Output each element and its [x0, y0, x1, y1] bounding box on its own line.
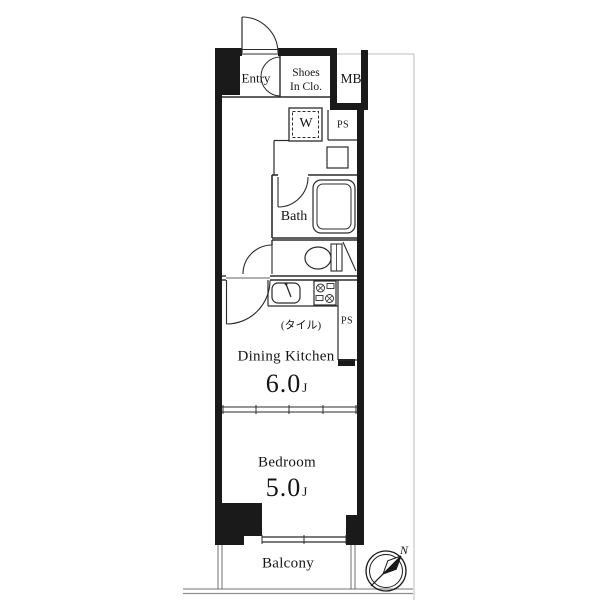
entry-label: Entry [242, 72, 271, 87]
washer-label: W [299, 116, 312, 132]
wall-bottom-left-block [215, 503, 262, 536]
wall-mb-right [361, 50, 368, 110]
floor-plan: Entry Shoes In Clo. MB W PS Bath PS (タイル… [0, 0, 600, 600]
tile-note-label: (タイル) [281, 320, 321, 333]
toilet-bowl [305, 247, 331, 269]
wall-mb-left [330, 48, 337, 110]
bedroom-window [262, 535, 346, 544]
washer-area [274, 108, 357, 175]
pipe-space-top-label: PS [337, 119, 349, 131]
bedroom-label: Bedroom [258, 454, 316, 471]
faucet [286, 284, 291, 297]
wall-bottom-left-foot [215, 533, 244, 545]
dk-door-swing [227, 281, 271, 325]
dk-size-unit: J [302, 381, 308, 396]
shoes-closet-label: Shoes In Clo. [290, 66, 322, 94]
toilet-room [243, 240, 357, 274]
wall-east [357, 103, 364, 545]
water-heater-box [327, 147, 348, 168]
dining-kitchen-size: 6.0J [266, 369, 309, 399]
bedroom-size: 5.0J [266, 473, 309, 503]
toilet-door-swing [243, 245, 272, 274]
compass-north-label: N [400, 544, 408, 558]
bathtub-inner [317, 184, 351, 229]
wall-bottom-right-block [346, 515, 364, 545]
room-divider [222, 405, 357, 414]
entry-door [242, 17, 278, 54]
bedroom-size-number: 5.0 [266, 473, 302, 503]
dk-size-number: 6.0 [266, 369, 302, 399]
kitchen-sink [272, 283, 300, 303]
wall-west [215, 48, 222, 545]
dining-kitchen-label: Dining Kitchen [237, 348, 334, 365]
bathtub-outer [313, 180, 355, 233]
compass-needle-black-half [383, 556, 401, 574]
bedroom-size-unit: J [302, 485, 308, 500]
entry-door-swing [242, 17, 278, 53]
shoes-closet-label-line1: Shoes [290, 66, 322, 80]
meter-box-label: MB [340, 71, 361, 87]
shoes-closet-label-line2: In Clo. [290, 80, 322, 94]
balcony-label: Balcony [262, 555, 314, 572]
pipe-space-bottom-label: PS [341, 315, 353, 327]
bath-room [272, 175, 357, 238]
bath-label: Bath [281, 209, 307, 225]
bath-door-swing [278, 177, 308, 207]
wall-top-right-segment [278, 48, 330, 56]
toilet-corner-line [343, 242, 356, 271]
